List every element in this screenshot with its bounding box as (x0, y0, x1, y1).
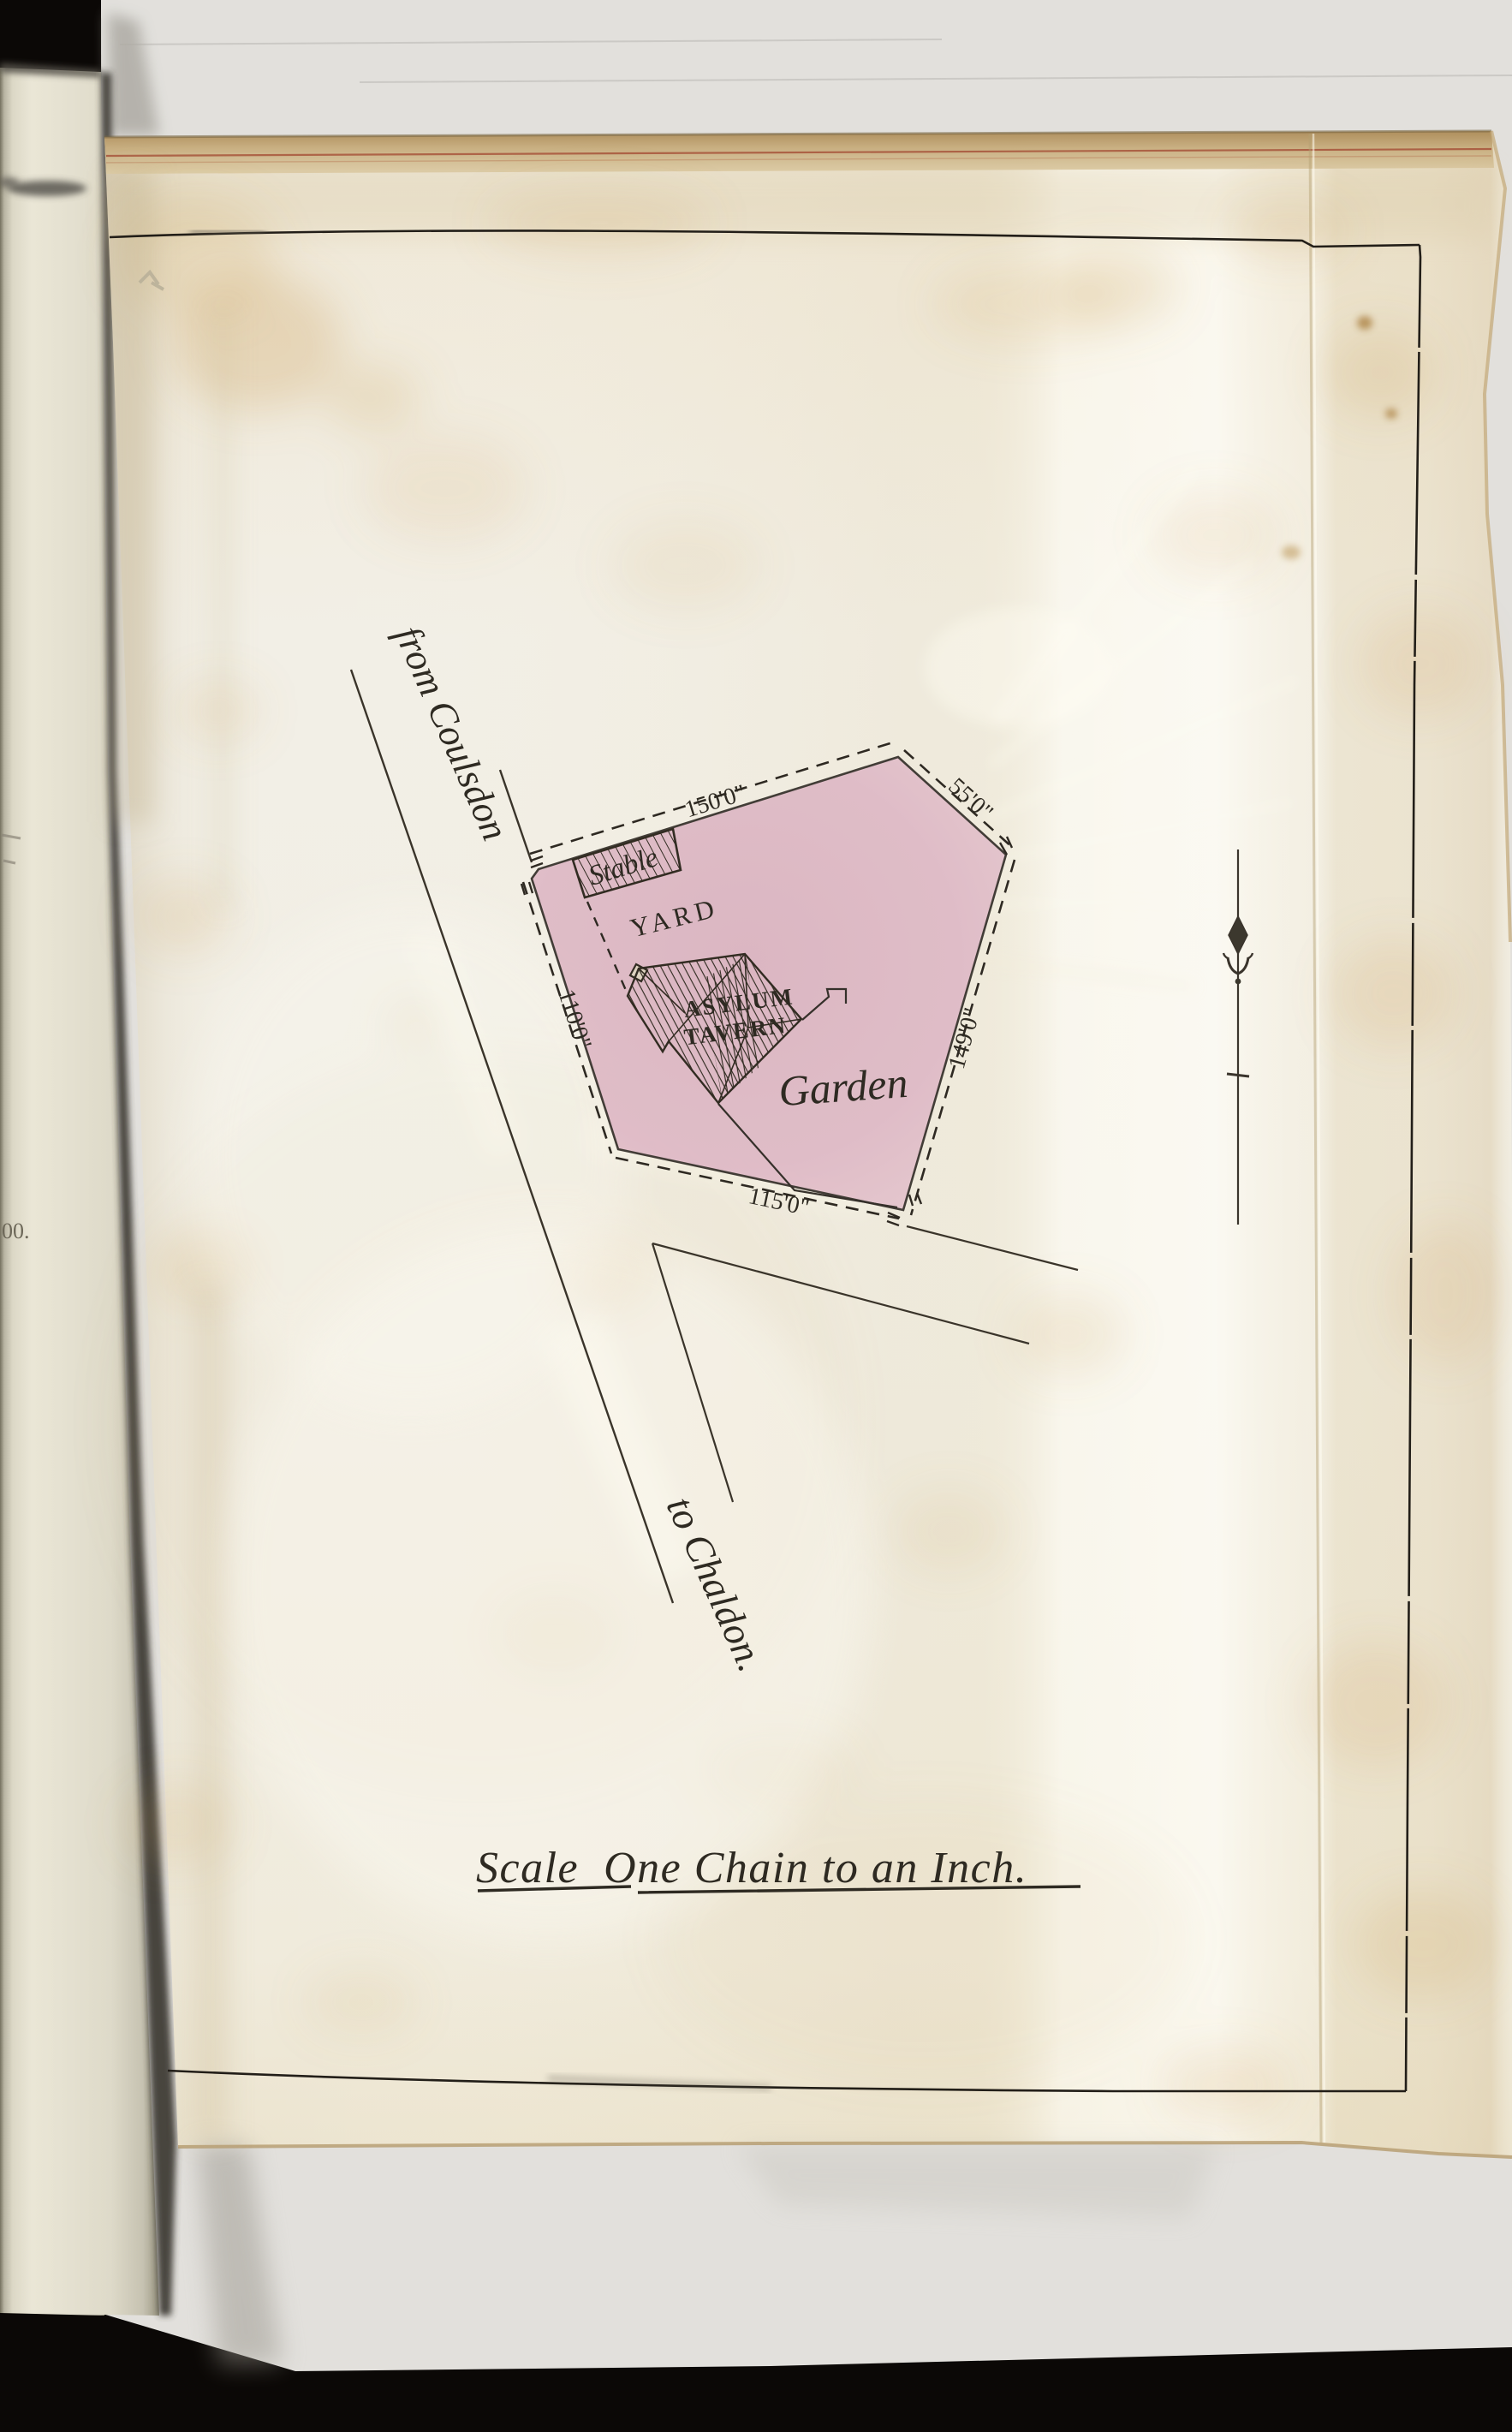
svg-text:Scale One Chain to an Inch.: Scale One Chain to an Inch. (476, 1844, 1027, 1893)
svg-text:00.: 00. (2, 1219, 30, 1243)
svg-text:Garden: Garden (777, 1058, 909, 1115)
